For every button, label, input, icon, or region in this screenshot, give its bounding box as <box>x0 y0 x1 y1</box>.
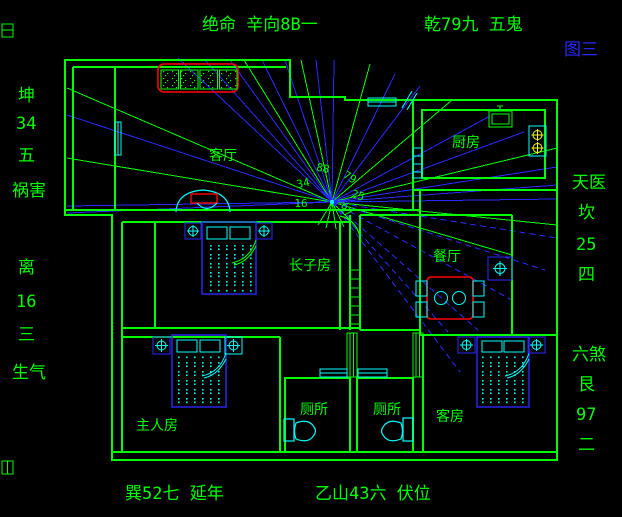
toilet-fixture-right <box>382 418 414 441</box>
annotation-li-rank: 三 <box>18 325 35 345</box>
annotation-kan: 坎 <box>578 203 595 223</box>
center-number-left: 16 <box>294 197 307 210</box>
annotation-li: 离 <box>18 258 35 278</box>
room-label-guest: 客房 <box>436 408 464 425</box>
window-kitchen-left <box>413 148 422 178</box>
annotation-gen: 艮 <box>578 375 595 395</box>
tv-cabinet <box>176 190 230 212</box>
bed-master <box>172 335 226 407</box>
annotation-kan-number: 25 <box>576 235 596 255</box>
annotation-kun-number: 34 <box>16 114 36 134</box>
bed-eldest-son <box>202 222 256 294</box>
nightstand <box>153 337 170 354</box>
floorplan-canvas[interactable]: 绝命 辛向8B一 乾79九 五鬼 图三 坤 34 五 祸害 离 16 三 生气 … <box>0 0 622 517</box>
nightstand <box>256 223 272 239</box>
bed-guest <box>477 337 529 407</box>
ucs-icon-bottom-left <box>2 461 13 474</box>
room-label-toilet-right: 厕所 <box>373 402 401 418</box>
kitchen-walls <box>422 110 545 178</box>
annotation-bottom-right: 乙山43六 伏位 <box>315 484 431 504</box>
annotation-huohai: 祸害 <box>12 181 46 201</box>
window-toilet-left <box>320 369 347 377</box>
room-label-living: 客厅 <box>209 147 237 164</box>
annotation-top: 绝命 辛向8B一 <box>202 15 318 35</box>
annotation-top-right: 乾79九 五鬼 <box>424 15 523 35</box>
center-number-upper-left: 34 <box>295 176 311 192</box>
annotation-kun: 坤 <box>18 86 35 106</box>
figure-label: 图三 <box>564 40 598 60</box>
room-label-eldest: 长子房 <box>289 258 331 274</box>
nightstand <box>458 337 475 353</box>
windows-layer <box>115 91 422 377</box>
annotation-kan-rank: 四 <box>578 265 595 285</box>
annotation-kun-rank: 五 <box>18 146 35 166</box>
staircase <box>350 270 360 324</box>
compass-center-point <box>330 200 334 204</box>
toilet-fixture-left <box>284 419 316 441</box>
kitchen-sink <box>489 106 512 127</box>
annotation-gen-rank: 二 <box>578 435 595 455</box>
annotation-li-number: 16 <box>16 292 36 312</box>
window-toilet-right <box>358 369 387 377</box>
annotation-tianyi: 天医 <box>572 173 606 193</box>
dining-table <box>427 277 473 319</box>
center-number-top: 88 <box>315 161 331 176</box>
room-label-master: 主人房 <box>136 418 178 434</box>
flower-stand <box>488 257 512 280</box>
annotation-shengqi: 生气 <box>12 363 46 383</box>
annotation-gen-number: 97 <box>576 405 596 425</box>
nightstand <box>185 223 201 239</box>
window-living-left <box>115 122 121 155</box>
nightstand <box>528 337 545 353</box>
cad-floorplan-screenshot: 绝命 辛向8B一 乾79九 五鬼 图三 坤 34 五 祸害 离 16 三 生气 … <box>0 0 622 517</box>
center-number-upper-right: 79 <box>341 168 359 186</box>
annotation-bottom-left: 巽52七 延年 <box>125 484 224 504</box>
passage-hatch-right <box>413 333 423 377</box>
sofa <box>158 64 238 92</box>
room-label-kitchen: 厨房 <box>452 135 480 151</box>
room-label-dining: 餐厅 <box>433 249 461 265</box>
nightstand <box>225 337 242 354</box>
room-label-toilet-left: 厕所 <box>300 402 328 418</box>
annotation-liusha: 六煞 <box>572 345 606 365</box>
passage-hatch-left <box>347 333 357 377</box>
ucs-icon-top-left <box>2 24 13 37</box>
dashed-blue-rays <box>332 202 557 372</box>
